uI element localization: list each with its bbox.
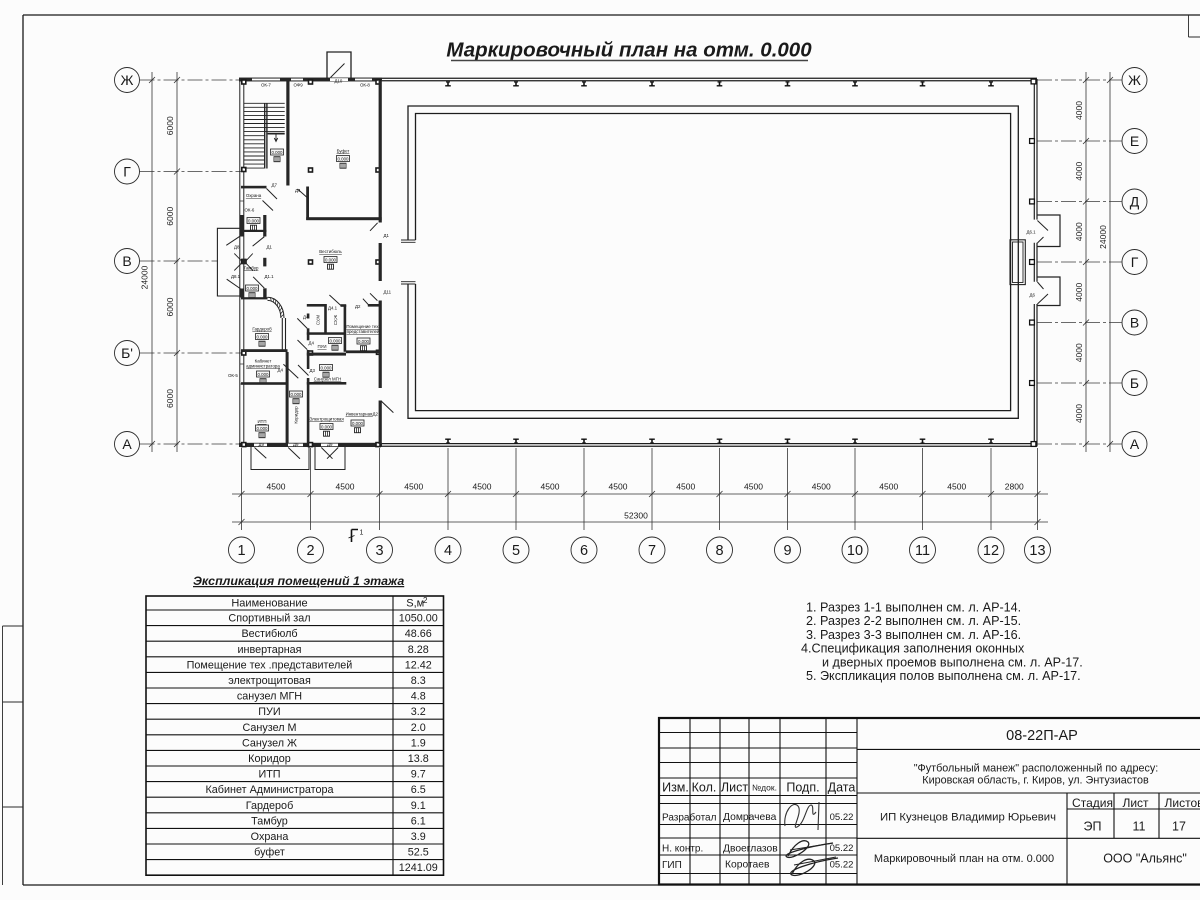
svg-text:ОК-6: ОК-6 bbox=[245, 208, 255, 213]
svg-text:ОК-8: ОК-8 bbox=[360, 82, 370, 87]
svg-text:Е: Е bbox=[1130, 133, 1139, 149]
svg-text:Лист: Лист bbox=[1122, 796, 1149, 810]
svg-text:Гардероб: Гардероб bbox=[252, 327, 272, 332]
svg-text:8.28: 8.28 bbox=[408, 644, 429, 656]
svg-text:2: 2 bbox=[306, 543, 314, 559]
svg-text:24000: 24000 bbox=[1098, 225, 1108, 249]
svg-text:"Футбольный манеж" расположенн: "Футбольный манеж" расположенный по адре… bbox=[914, 763, 1159, 775]
svg-text:ОФ9: ОФ9 bbox=[294, 82, 304, 87]
svg-text:4500: 4500 bbox=[744, 482, 763, 492]
svg-text:ПУИ: ПУИ bbox=[317, 344, 326, 349]
svg-text:Изм.: Изм. bbox=[662, 781, 689, 795]
svg-text:А: А bbox=[1130, 436, 1140, 452]
svg-text:Тамбур: Тамбур bbox=[251, 815, 288, 827]
svg-text:4500: 4500 bbox=[541, 482, 560, 492]
svg-text:Д9: Д9 bbox=[259, 442, 265, 447]
svg-text:Г: Г bbox=[123, 164, 131, 180]
svg-text:Д1: Д1 bbox=[384, 233, 390, 238]
svg-text:Санузел М: Санузел М bbox=[242, 722, 296, 734]
svg-text:и дверных проемов выполнена см: и дверных проемов выполнена см. л. АР-17… bbox=[822, 655, 1083, 669]
svg-text:52.5: 52.5 bbox=[408, 847, 429, 859]
svg-text:Наименование: Наименование bbox=[231, 598, 307, 610]
svg-text:Лист: Лист bbox=[721, 781, 748, 795]
svg-text:5: 5 bbox=[512, 543, 520, 559]
svg-text:1: 1 bbox=[360, 530, 364, 537]
svg-text:Ж: Ж bbox=[121, 72, 134, 88]
svg-text:Экспликация помещений 1 этажа: Экспликация помещений 1 этажа bbox=[193, 574, 404, 588]
svg-text:Гардероб: Гардероб bbox=[246, 800, 294, 812]
svg-text:05.22: 05.22 bbox=[830, 860, 854, 871]
svg-text:1. Разрез 1-1 выполнен см. л.: 1. Разрез 1-1 выполнен см. л. АР-14. bbox=[806, 601, 1021, 615]
svg-text:4500: 4500 bbox=[812, 482, 831, 492]
svg-text:Кировская область, г. Киров, у: Кировская область, г. Киров, ул. Энтузиа… bbox=[922, 775, 1149, 787]
svg-text:санузел МГН: санузел МГН bbox=[237, 691, 302, 703]
svg-text:4500: 4500 bbox=[609, 482, 628, 492]
svg-text:Двоеглазов: Двоеглазов bbox=[723, 844, 778, 855]
svg-text:10: 10 bbox=[847, 543, 863, 559]
svg-text:ИП Кузнецов Владимир Юрьевич: ИП Кузнецов Владимир Юрьевич bbox=[880, 812, 1056, 824]
svg-text:4000: 4000 bbox=[1074, 101, 1084, 120]
svg-text:Д4: Д4 bbox=[278, 368, 284, 373]
svg-text:11: 11 bbox=[1133, 820, 1146, 834]
svg-text:Дата: Дата bbox=[828, 781, 856, 795]
svg-text:Тамбур: Тамбур bbox=[244, 266, 259, 271]
svg-text:Спортивный зал: Спортивный зал bbox=[228, 613, 310, 625]
svg-text:ИТП: ИТП bbox=[258, 769, 280, 781]
svg-text:8: 8 bbox=[715, 543, 723, 559]
svg-text:7: 7 bbox=[648, 543, 656, 559]
svg-text:Д11: Д11 bbox=[384, 290, 392, 295]
svg-text:Инвентарная: Инвентарная bbox=[346, 412, 373, 417]
svg-text:3.2: 3.2 bbox=[411, 706, 426, 718]
svg-text:В: В bbox=[122, 253, 131, 269]
svg-text:Маркировочный план на отм. 0.0: Маркировочный план на отм. 0.000 bbox=[446, 39, 812, 62]
svg-text:Санузел Ж: Санузел Ж bbox=[242, 737, 297, 749]
svg-text:13.8: 13.8 bbox=[408, 753, 429, 765]
svg-text:2800: 2800 bbox=[1005, 482, 1024, 492]
svg-text:Д6.1: Д6.1 bbox=[1027, 230, 1037, 235]
svg-text:3: 3 bbox=[375, 543, 383, 559]
svg-text:05.22: 05.22 bbox=[830, 843, 854, 854]
svg-text:Кол.: Кол. bbox=[692, 781, 717, 795]
svg-text:4000: 4000 bbox=[1074, 404, 1084, 423]
svg-text:4500: 4500 bbox=[676, 482, 695, 492]
svg-text:представителей: представителей bbox=[347, 329, 380, 334]
svg-text:№док.: №док. bbox=[752, 783, 777, 793]
svg-text:электрощитовая: электрощитовая bbox=[228, 675, 311, 687]
svg-text:Разработал: Разработал bbox=[662, 812, 717, 824]
svg-text:А: А bbox=[122, 436, 132, 452]
svg-text:ПУИ: ПУИ bbox=[258, 706, 280, 718]
svg-text:ИТП: ИТП bbox=[258, 419, 267, 424]
svg-text:6: 6 bbox=[580, 543, 588, 559]
svg-text:1.9: 1.9 bbox=[411, 737, 426, 749]
svg-text:Электрощитовая: Электрощитовая bbox=[309, 417, 344, 422]
svg-text:Д9: Д9 bbox=[327, 442, 333, 447]
svg-text:6000: 6000 bbox=[165, 389, 175, 408]
svg-text:СУ,М: СУ,М bbox=[316, 315, 321, 325]
svg-text:4: 4 bbox=[444, 543, 452, 559]
svg-text:2.0: 2.0 bbox=[411, 722, 426, 734]
svg-text:Б': Б' bbox=[121, 345, 133, 361]
svg-text:Г: Г bbox=[1131, 254, 1139, 270]
svg-text:Д: Д bbox=[1130, 194, 1140, 210]
svg-text:Д6: Д6 bbox=[1030, 293, 1036, 298]
svg-text:12.42: 12.42 bbox=[405, 659, 432, 671]
svg-text:Д10: Д10 bbox=[335, 78, 343, 83]
svg-text:17: 17 bbox=[1172, 820, 1186, 834]
svg-text:Вестибюлб: Вестибюлб bbox=[241, 628, 297, 640]
svg-text:4500: 4500 bbox=[336, 482, 355, 492]
svg-text:4500: 4500 bbox=[404, 482, 423, 492]
svg-text:Коридор: Коридор bbox=[294, 406, 299, 424]
svg-text:Стадия: Стадия bbox=[1072, 796, 1113, 810]
svg-text:48.66: 48.66 bbox=[405, 628, 432, 640]
svg-text:Б: Б bbox=[1130, 375, 1139, 391]
svg-text:Коротаев: Коротаев bbox=[725, 860, 770, 871]
svg-text:Д8.1: Д8.1 bbox=[231, 274, 241, 279]
svg-text:3.9: 3.9 bbox=[411, 831, 426, 843]
svg-text:4500: 4500 bbox=[267, 482, 286, 492]
svg-text:9: 9 bbox=[783, 543, 791, 559]
svg-text:Помещение тех .представителей: Помещение тех .представителей bbox=[187, 659, 353, 671]
svg-text:Д3: Д3 bbox=[310, 368, 316, 373]
svg-text:Охрана: Охрана bbox=[251, 831, 289, 843]
svg-text:4000: 4000 bbox=[1074, 162, 1084, 181]
svg-text:5. Экспликация полов выполнена: 5. Экспликация полов выполнена см. л. АР… bbox=[806, 669, 1081, 683]
svg-text:08-22П-АР: 08-22П-АР bbox=[1006, 728, 1078, 744]
svg-text:1050.00: 1050.00 bbox=[399, 613, 438, 625]
svg-text:буфет: буфет bbox=[254, 847, 285, 859]
svg-text:СУ,Ж: СУ,Ж bbox=[333, 315, 338, 326]
svg-text:Д8: Д8 bbox=[234, 245, 240, 250]
svg-text:Коридор: Коридор bbox=[248, 753, 291, 765]
svg-text:ГИП: ГИП bbox=[662, 860, 682, 871]
svg-text:4000: 4000 bbox=[1074, 222, 1084, 241]
svg-text:3. Разрез 3-3 выполнен см. л.: 3. Разрез 3-3 выполнен см. л. АР-16. bbox=[806, 628, 1021, 642]
svg-text:2. Разрез 2-2 выполнен см. л.: 2. Разрез 2-2 выполнен см. л. АР-15. bbox=[806, 614, 1021, 628]
svg-text:Д2: Д2 bbox=[355, 304, 361, 309]
svg-text:4500: 4500 bbox=[473, 482, 492, 492]
svg-text:Д4.1: Д4.1 bbox=[328, 306, 338, 311]
svg-text:Д1.1: Д1.1 bbox=[265, 274, 275, 279]
svg-text:4.8: 4.8 bbox=[411, 691, 426, 703]
svg-text:52300: 52300 bbox=[624, 511, 648, 521]
svg-text:6000: 6000 bbox=[165, 207, 175, 226]
svg-text:Домрачева: Домрачева bbox=[723, 812, 777, 823]
svg-text:ООО "Альянс": ООО "Альянс" bbox=[1103, 852, 1187, 866]
svg-text:Д4: Д4 bbox=[309, 341, 315, 346]
svg-text:Листов: Листов bbox=[1165, 796, 1200, 810]
svg-text:Охрана: Охрана bbox=[246, 193, 262, 198]
svg-text:инвертарная: инвертарная bbox=[237, 644, 301, 656]
svg-text:4000: 4000 bbox=[1074, 283, 1084, 302]
svg-text:администратора: администратора bbox=[246, 363, 280, 368]
svg-text:2: 2 bbox=[423, 596, 428, 605]
svg-text:Д1: Д1 bbox=[267, 245, 273, 250]
svg-text:Д7: Д7 bbox=[272, 183, 278, 188]
svg-text:Д9: Д9 bbox=[293, 442, 299, 447]
svg-text:8.3: 8.3 bbox=[411, 675, 426, 687]
svg-text:6.1: 6.1 bbox=[411, 815, 426, 827]
svg-text:Ж: Ж bbox=[1128, 72, 1141, 88]
svg-text:S,м: S,м bbox=[406, 598, 424, 610]
svg-text:12: 12 bbox=[983, 543, 999, 559]
svg-text:13: 13 bbox=[1029, 543, 1045, 559]
svg-text:ОК-5: ОК-5 bbox=[228, 373, 238, 378]
svg-text:9.1: 9.1 bbox=[411, 800, 426, 812]
svg-text:Буфет: Буфет bbox=[337, 149, 350, 154]
svg-text:Д4: Д4 bbox=[295, 188, 301, 193]
svg-text:1241.09: 1241.09 bbox=[399, 862, 438, 874]
svg-text:ОК-7: ОК-7 bbox=[261, 82, 271, 87]
svg-text:6000: 6000 bbox=[165, 116, 175, 135]
svg-text:Вестибюль: Вестибюль bbox=[319, 249, 342, 254]
svg-text:Маркировочный план на отм. 0.0: Маркировочный план на отм. 0.000 bbox=[874, 853, 1054, 865]
svg-text:Подп.: Подп. bbox=[786, 781, 819, 795]
svg-text:24000: 24000 bbox=[140, 265, 150, 289]
svg-text:05.22: 05.22 bbox=[830, 812, 854, 823]
svg-text:11: 11 bbox=[915, 543, 930, 559]
svg-text:Н. контр.: Н. контр. bbox=[662, 844, 703, 855]
svg-text:4000: 4000 bbox=[1074, 343, 1084, 362]
svg-text:Д2: Д2 bbox=[373, 412, 379, 417]
svg-text:6000: 6000 bbox=[165, 297, 175, 316]
svg-text:4500: 4500 bbox=[947, 482, 966, 492]
svg-text:4.Спецификация заполнения окон: 4.Спецификация заполнения оконных bbox=[801, 642, 1025, 656]
svg-text:9.7: 9.7 bbox=[411, 769, 426, 781]
svg-text:В: В bbox=[1130, 315, 1139, 331]
svg-text:1: 1 bbox=[237, 543, 245, 559]
svg-text:Кабинет Администратора: Кабинет Администратора bbox=[206, 784, 334, 796]
svg-text:4500: 4500 bbox=[879, 482, 898, 492]
svg-text:6.5: 6.5 bbox=[411, 784, 426, 796]
svg-text:Д4: Д4 bbox=[303, 315, 309, 320]
svg-text:ЭП: ЭП bbox=[1084, 820, 1102, 834]
